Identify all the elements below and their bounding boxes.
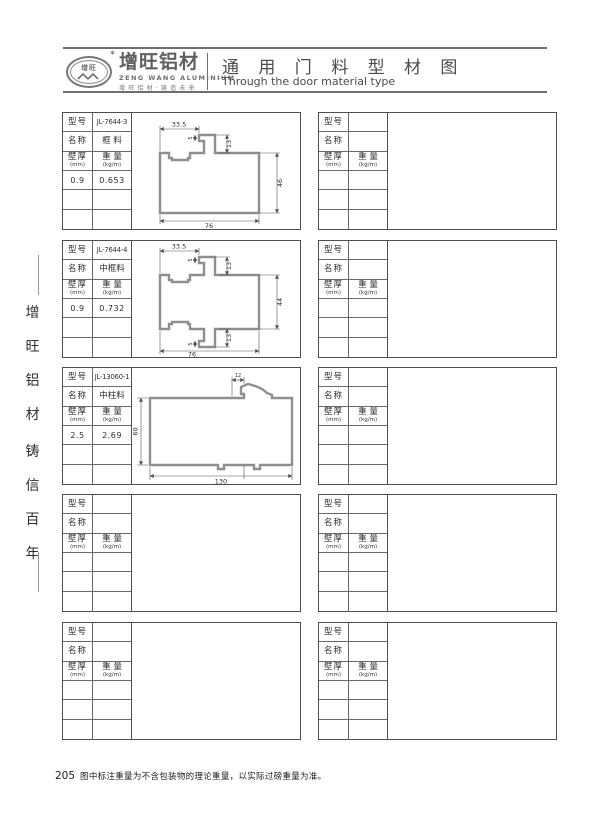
label-model: 型号 (63, 241, 93, 260)
empty-cell (93, 465, 131, 484)
label-thickness: 壁厚 (mm) (63, 152, 93, 171)
header-top-rule (63, 47, 547, 49)
weight-unit: (kg/m) (103, 544, 121, 550)
value-name (349, 642, 387, 661)
sidebar-char: 材 (25, 404, 40, 424)
empty-cell (349, 171, 387, 190)
spec-table: 型号 名称 壁厚 (mm) 重 量 (kg/m) (319, 368, 388, 484)
label-model: 型号 (319, 623, 349, 642)
label-model: 型号 (63, 368, 93, 387)
spec-table: 型号 名称 壁厚 (mm) 重 量 (kg/m) (63, 623, 132, 739)
empty-cell (349, 592, 387, 611)
empty-cell (93, 210, 131, 229)
weight-unit: (kg/m) (103, 290, 121, 296)
empty-cell (63, 700, 93, 719)
label-name: 名称 (319, 514, 349, 533)
thickness-text: 壁厚 (324, 535, 343, 544)
empty-cell (93, 318, 131, 337)
footer: 205 图中标注重量为不含包装物的理论重量，以实际过磅重量为准。 (55, 770, 326, 782)
label-thickness: 壁厚 (mm) (63, 662, 93, 681)
empty-cell (349, 426, 387, 445)
empty-cell (93, 338, 131, 357)
value-name: 中框料 (93, 260, 131, 279)
empty-cell (63, 465, 93, 484)
value-model (349, 623, 387, 642)
profile-drawing-jl-13060-1: 12 60 130 (132, 368, 300, 484)
label-name: 名称 (319, 642, 349, 661)
label-thickness: 壁厚 (mm) (319, 662, 349, 681)
thickness-unit: (mm) (326, 672, 341, 678)
label-weight: 重 量 (kg/m) (349, 407, 387, 426)
value-name (349, 260, 387, 279)
brand-name: 增旺铝材 (119, 52, 199, 73)
empty-cell (93, 572, 131, 591)
label-weight: 重 量 (kg/m) (349, 534, 387, 553)
label-weight: 重 量 (kg/m) (349, 152, 387, 171)
logo-roof-icon (76, 72, 102, 80)
empty-cell (93, 553, 131, 572)
weight-text: 重 量 (358, 663, 378, 672)
profile-block-empty: 型号 名称 壁厚 (mm) 重 量 (kg/m) (318, 622, 557, 740)
weight-text: 重 量 (358, 153, 378, 162)
value-name (93, 514, 131, 533)
value-model (349, 113, 387, 132)
thickness-unit: (mm) (326, 162, 341, 168)
footer-note: 图中标注重量为不含包装物的理论重量，以实际过磅重量为准。 (80, 770, 326, 782)
label-name: 名称 (63, 514, 93, 533)
profile-block-empty: 型号 名称 壁厚 (mm) 重 量 (kg/m) (62, 494, 301, 612)
thickness-text: 壁厚 (324, 153, 343, 162)
catalog-page: 增旺 * 增旺铝材 ZENG WANG ALUMINIUM 增旺铝材·铸造未来 … (0, 0, 612, 825)
profile-drawing-jl-7644-3: 33.5 5 13 46 76 (132, 113, 300, 229)
empty-cell (93, 190, 131, 209)
empty-cell (319, 465, 349, 484)
thickness-unit: (mm) (70, 290, 85, 296)
label-weight: 重 量 (kg/m) (93, 152, 131, 171)
sidebar-rule-top (38, 255, 39, 295)
empty-cell (63, 318, 93, 337)
label-thickness: 壁厚 (mm) (63, 407, 93, 426)
empty-cell (319, 318, 349, 337)
spec-table: 型号 名称 壁厚 (mm) 重 量 (kg/m) (319, 623, 388, 739)
profile-block-empty: 型号 名称 壁厚 (mm) 重 量 (kg/m) (318, 494, 557, 612)
drawing-area-empty (388, 368, 556, 484)
sidebar-char: 旺 (25, 336, 40, 356)
weight-text: 重 量 (358, 535, 378, 544)
page-number: 205 (55, 770, 75, 782)
spec-table: 型号 名称 壁厚 (mm) 重 量 (kg/m) (319, 113, 388, 229)
empty-cell (93, 445, 131, 464)
thickness-text: 壁厚 (324, 663, 343, 672)
weight-text: 重 量 (102, 153, 122, 162)
dim-hook-bottom: 5 (188, 342, 194, 345)
brand-name-en: ZENG WANG ALUMINIUM (119, 74, 235, 82)
label-name: 名称 (319, 387, 349, 406)
spec-table: 型号 JL-7644-3 名称 框 料 壁厚 (mm) 重 量 (kg/m) 0… (63, 113, 132, 229)
empty-cell (319, 426, 349, 445)
thickness-unit: (mm) (326, 290, 341, 296)
dim-top-width: 33.5 (172, 243, 186, 251)
drawing-area-empty (388, 241, 556, 357)
empty-cell (93, 700, 131, 719)
weight-unit: (kg/m) (359, 290, 377, 296)
label-model: 型号 (319, 368, 349, 387)
label-thickness: 壁厚 (mm) (319, 152, 349, 171)
dim-width: 76 (188, 351, 196, 358)
label-thickness: 壁厚 (mm) (319, 407, 349, 426)
weight-unit: (kg/m) (359, 417, 377, 423)
value-weight: 0.732 (93, 299, 131, 318)
empty-cell (63, 553, 93, 572)
thickness-unit: (mm) (326, 417, 341, 423)
label-name: 名称 (63, 132, 93, 151)
thickness-text: 壁厚 (68, 663, 87, 672)
profile-block-jl-7644-3: 型号 JL-7644-3 名称 框 料 壁厚 (mm) 重 量 (kg/m) 0… (62, 112, 301, 230)
thickness-text: 壁厚 (68, 535, 87, 544)
page-subtitle: Through the door material type (222, 75, 395, 88)
empty-cell (349, 572, 387, 591)
empty-cell (63, 572, 93, 591)
value-name (349, 387, 387, 406)
label-name: 名称 (63, 387, 93, 406)
empty-cell (63, 190, 93, 209)
empty-cell (349, 299, 387, 318)
sidebar-char: 百 (25, 509, 40, 529)
profile-block-empty: 型号 名称 壁厚 (mm) 重 量 (kg/m) (62, 622, 301, 740)
value-thickness: 2.5 (63, 426, 93, 445)
thickness-unit: (mm) (70, 162, 85, 168)
label-model: 型号 (319, 241, 349, 260)
dim-top-width: 33.5 (172, 121, 186, 129)
value-weight: 0.653 (93, 171, 131, 190)
weight-unit: (kg/m) (359, 544, 377, 550)
label-weight: 重 量 (kg/m) (93, 407, 131, 426)
label-weight: 重 量 (kg/m) (93, 534, 131, 553)
empty-cell (63, 210, 93, 229)
empty-cell (319, 190, 349, 209)
empty-cell (349, 338, 387, 357)
sidebar-char: 信 (25, 475, 40, 495)
label-name: 名称 (319, 132, 349, 151)
weight-unit: (kg/m) (359, 162, 377, 168)
empty-cell (93, 592, 131, 611)
value-model (349, 495, 387, 514)
value-thickness: 0.9 (63, 171, 93, 190)
empty-cell (93, 681, 131, 700)
empty-cell (319, 592, 349, 611)
value-model (93, 495, 131, 514)
weight-text: 重 量 (102, 281, 122, 290)
label-thickness: 壁厚 (mm) (319, 280, 349, 299)
weight-unit: (kg/m) (103, 417, 121, 423)
drawing-area-empty (388, 623, 556, 739)
weight-text: 重 量 (358, 408, 378, 417)
empty-cell (349, 210, 387, 229)
profile-block-empty: 型号 名称 壁厚 (mm) 重 量 (kg/m) (318, 112, 557, 230)
profile-block-jl-13060-1: 型号 JL-13060-1 名称 中柱料 壁厚 (mm) 重 量 (kg/m) … (62, 367, 301, 485)
value-model: JL-7644-4 (93, 241, 131, 260)
label-thickness: 壁厚 (mm) (319, 534, 349, 553)
spec-table: 型号 JL-7644-4 名称 中框料 壁厚 (mm) 重 量 (kg/m) 0… (63, 241, 132, 357)
drawing-area-empty (132, 495, 300, 611)
label-thickness: 壁厚 (mm) (63, 534, 93, 553)
drawing-area-empty (388, 113, 556, 229)
empty-cell (63, 592, 93, 611)
label-model: 型号 (63, 623, 93, 642)
empty-cell (93, 720, 131, 739)
empty-cell (349, 190, 387, 209)
dim-hook-top: 5 (188, 258, 194, 261)
weight-text: 重 量 (358, 281, 378, 290)
dim-top: 12 (235, 373, 241, 379)
sidebar-char: 增 (25, 302, 40, 322)
empty-cell (319, 572, 349, 591)
dim-height: 46 (276, 179, 284, 187)
dim-tab-bottom: 13 (225, 334, 233, 342)
value-model (93, 623, 131, 642)
logo-mark-text: 增旺 (81, 65, 97, 72)
header-bottom-rule (63, 91, 547, 93)
empty-cell (63, 720, 93, 739)
thickness-text: 壁厚 (324, 281, 343, 290)
sidebar-char: 铸 (25, 441, 40, 461)
drawing-area-empty (132, 623, 300, 739)
value-name (349, 514, 387, 533)
thickness-unit: (mm) (70, 672, 85, 678)
thickness-unit: (mm) (70, 544, 85, 550)
dim-tab-top: 13 (225, 262, 233, 270)
value-thickness: 0.9 (63, 299, 93, 318)
value-weight: 2.69 (93, 426, 131, 445)
thickness-text: 壁厚 (68, 153, 87, 162)
dim-tab-height: 13 (225, 140, 233, 148)
empty-cell (349, 720, 387, 739)
empty-cell (319, 299, 349, 318)
thickness-text: 壁厚 (68, 408, 87, 417)
brand-logo-inner: 增旺 (70, 60, 108, 84)
empty-cell (319, 171, 349, 190)
label-model: 型号 (63, 495, 93, 514)
empty-cell (349, 465, 387, 484)
empty-cell (63, 445, 93, 464)
spec-table: 型号 名称 壁厚 (mm) 重 量 (kg/m) (63, 495, 132, 611)
label-weight: 重 量 (kg/m) (349, 662, 387, 681)
empty-cell (349, 318, 387, 337)
label-weight: 重 量 (kg/m) (93, 662, 131, 681)
value-name (93, 642, 131, 661)
dim-width: 76 (205, 222, 213, 229)
thickness-text: 壁厚 (324, 408, 343, 417)
brand-logo: 增旺 (66, 56, 112, 88)
sidebar-char: 铝 (25, 370, 40, 390)
weight-text: 重 量 (102, 663, 122, 672)
label-name: 名称 (63, 260, 93, 279)
label-thickness: 壁厚 (mm) (63, 280, 93, 299)
empty-cell (319, 210, 349, 229)
empty-cell (319, 700, 349, 719)
thickness-unit: (mm) (326, 544, 341, 550)
empty-cell (349, 700, 387, 719)
weight-text: 重 量 (102, 408, 122, 417)
label-name: 名称 (319, 260, 349, 279)
value-name: 中柱料 (93, 387, 131, 406)
thickness-unit: (mm) (70, 417, 85, 423)
profile-block-empty: 型号 名称 壁厚 (mm) 重 量 (kg/m) (318, 367, 557, 485)
profile-drawing-jl-7644-4: 33.5 5 13 44 5 13 76 (132, 241, 300, 357)
empty-cell (319, 681, 349, 700)
label-name: 名称 (63, 642, 93, 661)
label-weight: 重 量 (kg/m) (93, 280, 131, 299)
weight-text: 重 量 (102, 535, 122, 544)
empty-cell (63, 338, 93, 357)
empty-cell (319, 338, 349, 357)
weight-unit: (kg/m) (103, 162, 121, 168)
dim-width: 130 (215, 478, 227, 485)
logo-star-icon: * (110, 50, 115, 60)
profile-block-empty: 型号 名称 壁厚 (mm) 重 量 (kg/m) (318, 240, 557, 358)
value-model (349, 241, 387, 260)
thickness-text: 壁厚 (68, 281, 87, 290)
value-name (349, 132, 387, 151)
dim-height: 44 (276, 298, 284, 306)
value-model: JL-13060-1 (93, 368, 131, 387)
empty-cell (349, 553, 387, 572)
empty-cell (319, 720, 349, 739)
header-divider (207, 53, 208, 90)
empty-cell (63, 681, 93, 700)
profile-block-jl-7644-4: 型号 JL-7644-4 名称 中框料 壁厚 (mm) 重 量 (kg/m) 0… (62, 240, 301, 358)
weight-unit: (kg/m) (103, 672, 121, 678)
value-name: 框 料 (93, 132, 131, 151)
label-model: 型号 (319, 495, 349, 514)
spec-table: 型号 名称 壁厚 (mm) 重 量 (kg/m) (319, 241, 388, 357)
value-model: JL-7644-3 (93, 113, 131, 132)
value-model (349, 368, 387, 387)
empty-cell (349, 445, 387, 464)
drawing-area-empty (388, 495, 556, 611)
label-weight: 重 量 (kg/m) (349, 280, 387, 299)
empty-cell (319, 553, 349, 572)
empty-cell (319, 445, 349, 464)
label-model: 型号 (319, 113, 349, 132)
weight-unit: (kg/m) (359, 672, 377, 678)
empty-cell (349, 681, 387, 700)
dim-height: 60 (132, 427, 140, 435)
spec-table: 型号 名称 壁厚 (mm) 重 量 (kg/m) (319, 495, 388, 611)
spec-table: 型号 JL-13060-1 名称 中柱料 壁厚 (mm) 重 量 (kg/m) … (63, 368, 132, 484)
dim-hook: 5 (188, 136, 194, 139)
sidebar-rule-bottom (38, 552, 39, 592)
label-model: 型号 (63, 113, 93, 132)
